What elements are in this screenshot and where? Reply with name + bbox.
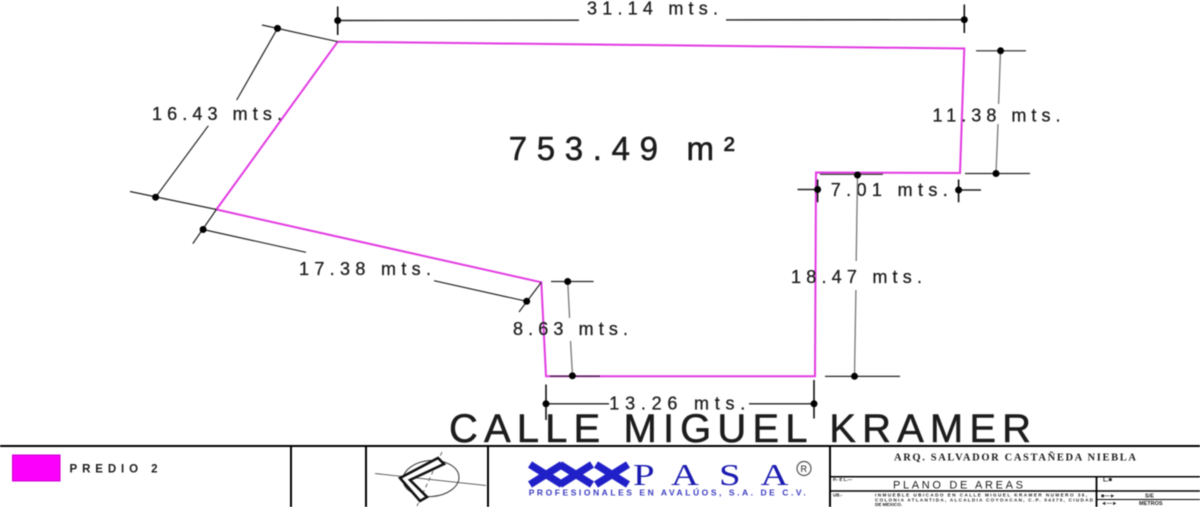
svg-text:L.■: L.■ [1103,478,1112,484]
svg-text:31.14 mts.: 31.14 mts. [587,0,718,19]
svg-text:18.47 mts.: 18.47 mts. [791,267,922,287]
svg-text:PREDIO 2: PREDIO 2 [70,464,158,476]
svg-text:16.43 mts.: 16.43 mts. [152,104,282,124]
svg-text:11.38 mts.: 11.38 mts. [933,106,1061,126]
svg-text:753.49 m²: 753.49 m² [509,130,735,167]
svg-text:R: R [801,464,808,474]
svg-text:COLONIA ATLANTIDA, ALCALDIA CO: COLONIA ATLANTIDA, ALCALDIA COYOACAN, C.… [875,497,1094,502]
svg-text:S/E: S/E [1145,494,1154,500]
svg-text:PLANO DE AREAS: PLANO DE AREAS [893,480,1023,492]
svg-text:P.- E L.—: P.- E L.— [833,477,853,482]
svg-text:7.01 mts.: 7.01 mts. [831,180,948,200]
svg-text:METROS: METROS [1139,501,1163,507]
svg-text:■—►: ■—► [1101,494,1115,500]
svg-text:◄—►: ◄—► [1101,501,1117,507]
svg-text:17.38 mts.: 17.38 mts. [299,259,431,279]
svg-text:ARQ. SALVADOR CASTAÑEDA NIEBLA: ARQ. SALVADOR CASTAÑEDA NIEBLA [894,452,1136,464]
svg-text:DE MEXICO.: DE MEXICO. [875,502,902,507]
svg-text:8.63 mts.: 8.63 mts. [513,319,628,339]
svg-text:CALLE MIGUEL KRAMER: CALLE MIGUEL KRAMER [449,407,1031,451]
svg-text:UB.-: UB.- [833,493,843,498]
